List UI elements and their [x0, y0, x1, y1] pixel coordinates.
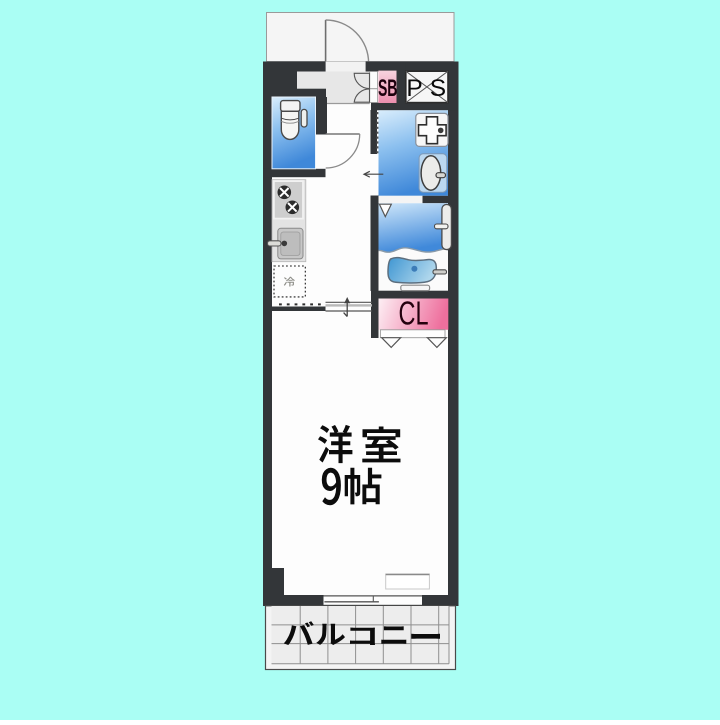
- svg-text:P: P: [406, 75, 422, 102]
- svg-text:SB: SB: [378, 75, 398, 102]
- svg-text:CL: CL: [399, 295, 429, 332]
- svg-text:S: S: [430, 75, 446, 102]
